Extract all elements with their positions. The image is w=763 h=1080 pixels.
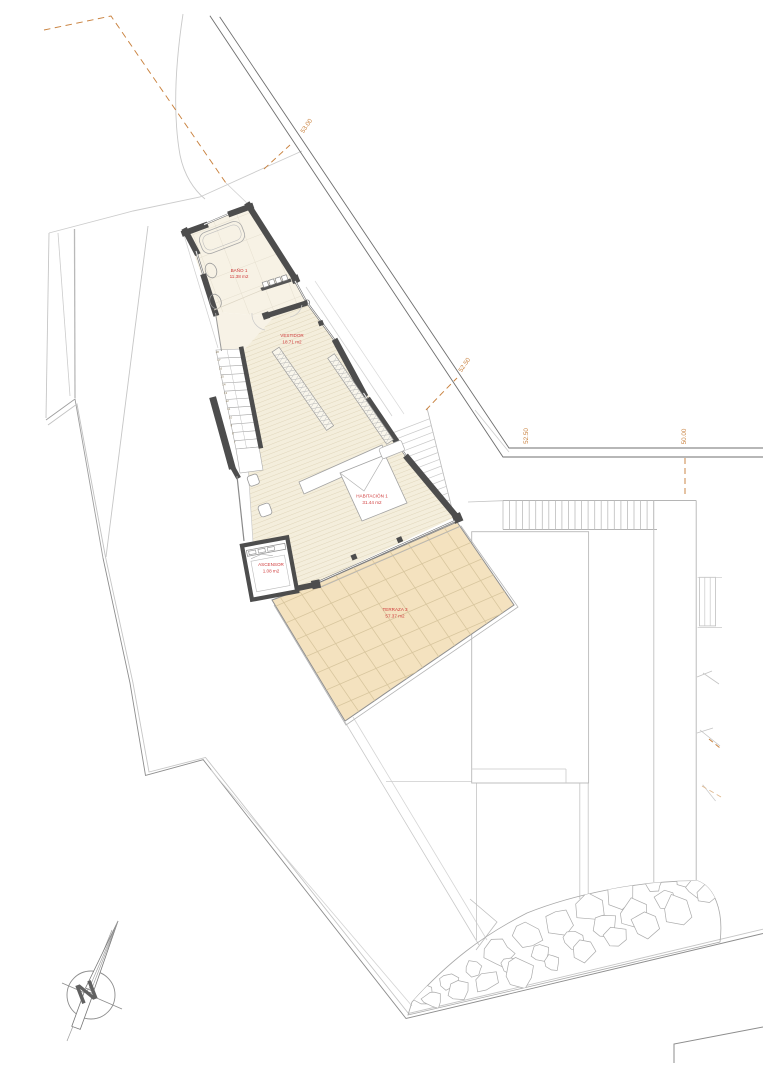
svg-text:ASCENSOR: ASCENSOR	[258, 562, 284, 567]
svg-text:TERRAZA 3: TERRAZA 3	[382, 607, 407, 612]
svg-text:HABITACIÓN 1: HABITACIÓN 1	[356, 493, 388, 499]
svg-text:18: 18	[216, 350, 220, 354]
svg-text:BAÑO 1: BAÑO 1	[231, 267, 248, 273]
svg-text:VESTIDOR: VESTIDOR	[280, 333, 304, 338]
svg-text:14: 14	[222, 383, 226, 387]
svg-text:1.08 m2: 1.08 m2	[263, 569, 280, 574]
svg-text:10: 10	[229, 415, 233, 419]
svg-text:12: 12	[226, 399, 230, 403]
svg-text:57.37 m2: 57.37 m2	[385, 614, 405, 619]
svg-text:31.44 m2: 31.44 m2	[362, 500, 382, 505]
svg-text:13: 13	[224, 391, 228, 395]
svg-text:15: 15	[221, 375, 225, 379]
svg-text:50.00: 50.00	[681, 428, 688, 444]
svg-text:16: 16	[219, 366, 223, 370]
svg-text:18.71 m2: 18.71 m2	[282, 340, 302, 345]
svg-text:11.38 m2: 11.38 m2	[230, 274, 249, 279]
svg-text:52.50: 52.50	[523, 428, 530, 444]
svg-text:17: 17	[217, 358, 221, 362]
svg-text:11: 11	[227, 407, 230, 411]
